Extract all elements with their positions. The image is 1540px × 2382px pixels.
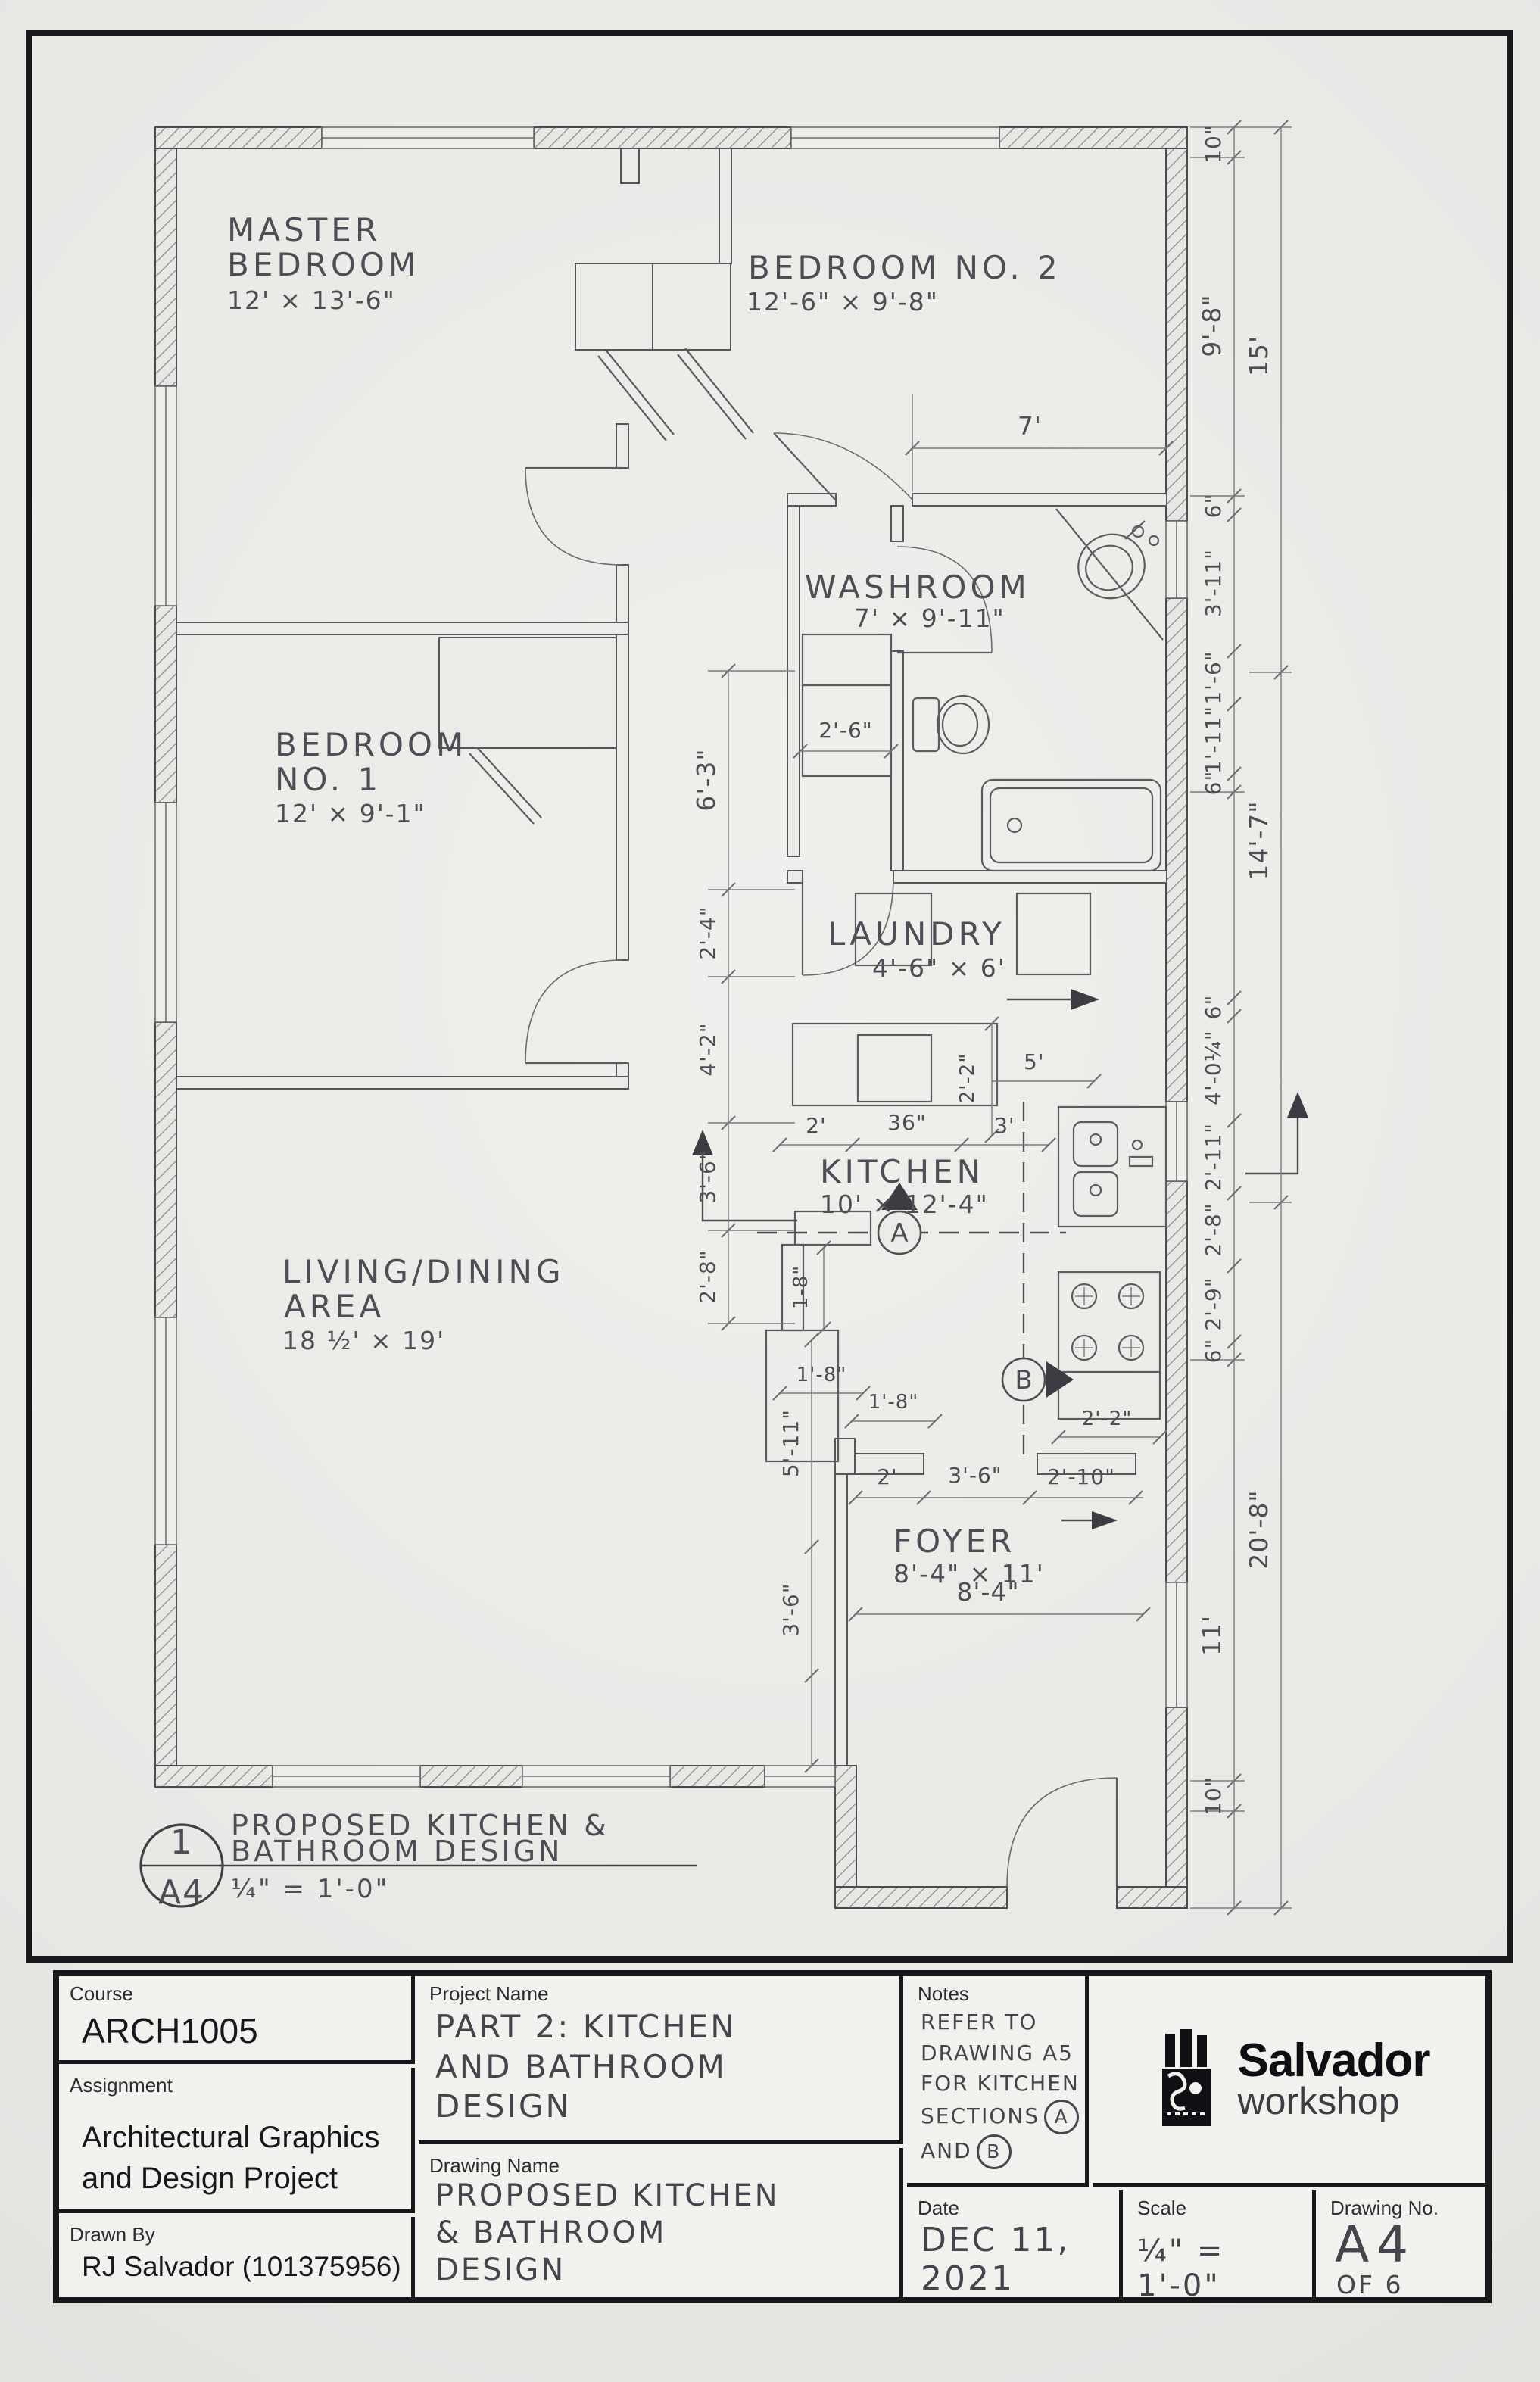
dim-right-inner-6: 6"	[1201, 771, 1226, 796]
dim-right-outer-2: 20'-8"	[1244, 1489, 1273, 1569]
room-dims-master: 12' × 13'-6"	[227, 285, 396, 315]
drawing-border	[29, 33, 1510, 1960]
dim-foyer-v-0: 5'-11"	[778, 1409, 803, 1477]
room-label-bed1-2: NO. 1	[275, 761, 382, 798]
scale-label: Scale	[1127, 2190, 1312, 2220]
dim-foyer-top-0: 2'	[877, 1464, 898, 1489]
room-label-laundry: LAUNDRY	[828, 915, 1005, 952]
right-arrow-icon	[1092, 1511, 1118, 1529]
notes-line-5: AND	[921, 2138, 972, 2163]
date-value-1: DEC 11,	[921, 2221, 1119, 2260]
room-label-living-2: AREA	[284, 1288, 385, 1325]
dim-right-outer-1: 14'-7"	[1244, 800, 1273, 880]
dim-foyer-width: 8'-4"	[956, 1577, 1019, 1607]
salvador-logo-icon	[1149, 2023, 1224, 2137]
dim-foyer-v-1: 3'-6"	[778, 1582, 803, 1636]
dim-right-inner-0: 10"	[1201, 124, 1226, 164]
stove-icon	[1058, 1272, 1160, 1372]
dim-washroom-closet: 2'-6"	[818, 718, 872, 743]
drawn-by-label: Drawn By	[59, 2217, 411, 2246]
logo-cell: Salvador workshop	[1093, 1976, 1485, 2187]
dim-right-inner-11: 2'-9"	[1201, 1277, 1226, 1330]
course-value: ARCH1005	[59, 2006, 411, 2051]
drawing-no-cell: Drawing No. A4 OF 6	[1320, 2190, 1485, 2297]
dim-foyer-top-2: 2'-10"	[1047, 1464, 1115, 1489]
dim-mid-1: 2'-4"	[695, 906, 720, 959]
notes-line-2: DRAWING A5	[921, 2038, 1085, 2069]
dim-mid-0: 6'-3"	[691, 748, 721, 811]
course-cell: Course ARCH1005	[59, 1976, 415, 2064]
dim-bed2-width: 7'	[1018, 411, 1042, 441]
project-name-cell: Project Name PART 2: KITCHEN AND BATHROO…	[419, 1976, 903, 2144]
drawing-name-1: PROPOSED KITCHEN	[435, 2178, 899, 2215]
date-cell: Date DEC 11, 2021	[907, 2190, 1123, 2297]
drawing-no-value: A4	[1320, 2220, 1485, 2270]
scale-cell: Scale ¼" = 1'-0"	[1127, 2190, 1316, 2297]
room-label-bed2: BEDROOM NO. 2	[748, 249, 1061, 286]
dim-mid-3: 3'-6"	[695, 1149, 720, 1203]
dim-right-inner-10: 2'-8"	[1201, 1202, 1226, 1256]
room-label-bed1: BEDROOM	[275, 726, 467, 763]
callout-scale: ¼" = 1'-0"	[231, 1874, 389, 1904]
dim-right-outer-0: 15'	[1244, 335, 1273, 376]
dim-kitchen-2-2-a: 2'-2"	[956, 1053, 979, 1104]
title-block: Course ARCH1005 Assignment Architectural…	[53, 1970, 1492, 2303]
course-label: Course	[59, 1976, 411, 2006]
room-label-master: MASTER	[227, 211, 381, 248]
notes-cell: Notes REFER TO DRAWING A5 FOR KITCHEN SE…	[907, 1976, 1089, 2187]
dim-right-inner-4: 1'-6"	[1201, 650, 1226, 704]
logo-title: Salvador	[1238, 2039, 1430, 2084]
dim-right-inner-12: 6"	[1201, 1339, 1226, 1364]
toilet-icon	[913, 698, 939, 751]
drawing-name-2: & BATHROOM	[435, 2215, 899, 2252]
bathroom-fixtures	[803, 509, 1163, 871]
dryer-icon	[1017, 893, 1090, 974]
room-dims-kitchen: 10' × 12'-4"	[820, 1189, 989, 1219]
project-name-2: AND BATHROOM	[435, 2047, 899, 2087]
section-a-letter: A	[890, 1218, 908, 1249]
callout-title-2: BATHROOM DESIGN	[231, 1835, 563, 1868]
project-name-label: Project Name	[419, 1976, 899, 2006]
notes-section-b-ref: B	[977, 2134, 1012, 2169]
room-label-foyer: FOYER	[893, 1523, 1015, 1560]
dim-right-inner-3: 3'-11"	[1201, 549, 1226, 617]
assignment-label: Assignment	[59, 2068, 411, 2097]
date-value-2: 2021	[921, 2260, 1119, 2299]
callout-sheet: A4	[158, 1873, 205, 1912]
room-label-kitchen: KITCHEN	[820, 1153, 984, 1190]
dim-foyer-top-1: 3'-6"	[948, 1463, 1002, 1488]
dim-right-inner-14: 10"	[1201, 1776, 1226, 1816]
callout-number: 1	[170, 1823, 193, 1862]
room-dims-laundry: 4'-6" × 6'	[872, 953, 1006, 983]
dim-kitchen-1-8-b: 1'-8"	[796, 1364, 847, 1386]
dim-kitchen-5: 5'	[1024, 1049, 1045, 1074]
project-name-1: PART 2: KITCHEN	[435, 2007, 899, 2047]
double-sink-icon	[1074, 1122, 1152, 1216]
dim-right-inner-9: 2'-11"	[1201, 1123, 1226, 1191]
drawing-callout: 1 A4 PROPOSED KITCHEN & BATHROOM DESIGN …	[141, 1809, 697, 1912]
room-labels: MASTER BEDROOM 12' × 13'-6" BEDROOM NO. …	[227, 211, 1061, 1589]
room-dims-washroom: 7' × 9'-11"	[854, 603, 1005, 633]
interior-walls	[176, 148, 1167, 1766]
dim-kitchen-1-8-a: 1-8"	[790, 1265, 812, 1309]
dim-right-inner-5: 1'-11"	[1201, 706, 1226, 774]
drawing-name-label: Drawing Name	[419, 2148, 899, 2178]
dim-kitchen-1-8-c: 1'-8"	[868, 1391, 919, 1414]
drawn-by-cell: Drawn By RJ Salvador (101375956)	[59, 2217, 415, 2297]
dim-kitchen-top-1: 36"	[887, 1110, 927, 1135]
dim-right-inner-2: 6"	[1201, 494, 1226, 519]
dim-right-inner-1: 9'-8"	[1197, 294, 1227, 357]
dim-mid-4: 2'-8"	[695, 1249, 720, 1303]
corner-sink-icon	[1069, 521, 1158, 608]
logo-subtitle: workshop	[1238, 2084, 1430, 2120]
notes-section-a-ref: A	[1044, 2100, 1079, 2134]
dim-right-inner-13: 11'	[1197, 1615, 1227, 1656]
linen-closet	[803, 634, 891, 685]
dim-kitchen-2-2-b: 2'-2"	[1082, 1408, 1133, 1430]
drawing-no-of: OF 6	[1320, 2270, 1485, 2299]
room-dims-bed1: 12' × 9'-1"	[275, 799, 426, 828]
notes-label: Notes	[907, 1976, 1085, 2006]
room-label-master-2: BEDROOM	[227, 246, 419, 283]
dim-mid-2: 4'-2"	[695, 1022, 720, 1076]
drawn-by-value: RJ Salvador (101375956)	[59, 2246, 411, 2283]
bathtub-icon	[982, 780, 1161, 871]
room-dims-living: 18 ½' × 19'	[282, 1326, 445, 1355]
dim-kitchen-top-2: 3'	[994, 1113, 1015, 1138]
dim-right-inner-7: 6"	[1201, 995, 1226, 1020]
section-b-letter: B	[1015, 1365, 1032, 1395]
notes-line-3: FOR KITCHEN	[921, 2069, 1085, 2100]
scale-value: ¼" = 1'-0"	[1127, 2220, 1312, 2303]
windows	[155, 127, 1187, 1787]
date-label: Date	[907, 2190, 1119, 2220]
up-arrow-icon	[1287, 1092, 1308, 1118]
room-dims-bed2: 12'-6" × 9'-8"	[747, 287, 939, 316]
drawing-name-cell: Drawing Name PROPOSED KITCHEN & BATHROOM…	[419, 2148, 903, 2297]
drawing-name-3: DESIGN	[435, 2252, 899, 2289]
dim-right-inner-8: 4'-0¼"	[1201, 1030, 1226, 1105]
assignment-value-1: Architectural Graphics	[82, 2117, 411, 2158]
project-name-3: DESIGN	[435, 2087, 899, 2127]
notes-line-4: SECTIONS	[921, 2103, 1040, 2128]
notes-line-1: REFER TO	[921, 2007, 1085, 2038]
assignment-value-2: and Design Project	[82, 2158, 411, 2199]
exterior-walls	[155, 127, 1187, 1908]
right-arrow-icon	[1071, 989, 1099, 1010]
dim-kitchen-top-0: 2'	[806, 1113, 827, 1138]
assignment-cell: Assignment Architectural Graphics and De…	[59, 2068, 415, 2213]
room-label-washroom: WASHROOM	[805, 569, 1030, 606]
room-label-living: LIVING/DINING	[282, 1253, 565, 1290]
